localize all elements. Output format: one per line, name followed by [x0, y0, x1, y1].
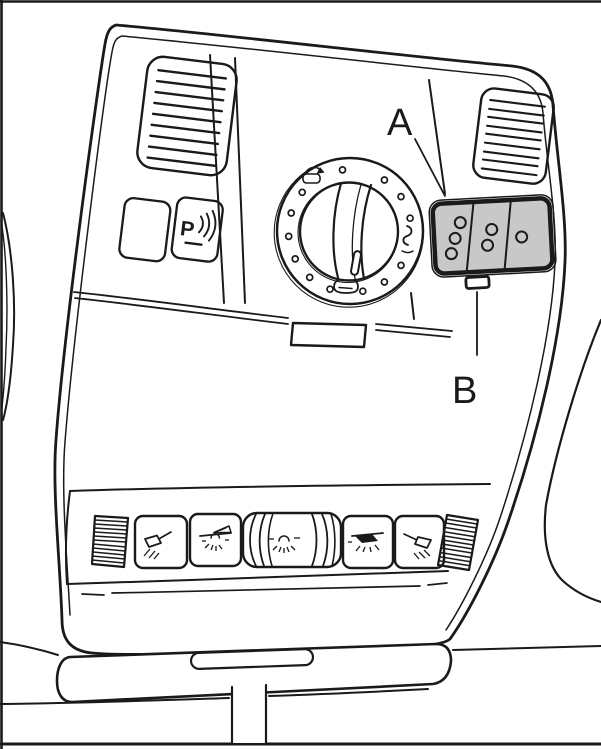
bar-slot — [191, 649, 313, 669]
diagram-canvas: P — [0, 0, 601, 749]
overhead-console-diagram: P — [0, 0, 601, 749]
left-pillar-trim — [1, 213, 14, 420]
indicator-lamp — [466, 276, 490, 288]
parktronic-label: P — [179, 217, 196, 242]
blank-plate — [291, 323, 366, 347]
sunroof-dial-knob — [298, 183, 398, 283]
callout-b-label: B — [452, 370, 477, 412]
mount-post — [231, 685, 267, 743]
callout-a-label: A — [387, 102, 413, 144]
garage-door-opener-panel — [429, 194, 557, 277]
